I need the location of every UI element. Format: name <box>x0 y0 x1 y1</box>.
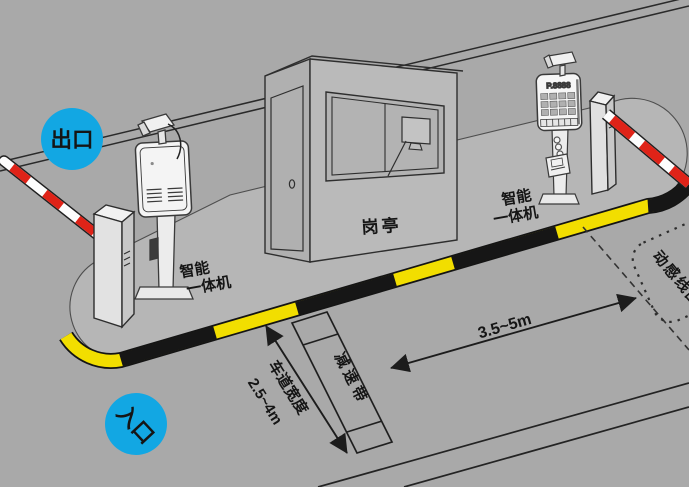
card-reader <box>546 154 570 177</box>
terminal-display-char <box>568 92 575 98</box>
terminal-display-char <box>568 100 575 106</box>
terminal-display-char <box>541 109 548 115</box>
terminal-display-char <box>559 109 566 115</box>
terminal-speaker-ring <box>556 144 562 150</box>
terminal-display-char <box>550 109 557 115</box>
exit-badge-label: 出口 <box>50 128 93 152</box>
booth-monitor-icon <box>402 117 430 144</box>
terminal-display-char <box>559 101 566 107</box>
booth-monitor-stand <box>409 143 422 150</box>
terminal-cabinet-shadow-edge <box>577 79 579 124</box>
terminal-display-char <box>568 108 575 114</box>
camera-mount <box>158 130 166 144</box>
terminal-base-plate <box>135 287 193 299</box>
barrier-post-front-face <box>94 214 122 327</box>
terminal-display-char <box>541 101 548 107</box>
terminal-display-char <box>559 93 566 99</box>
terminal-display-char <box>550 101 557 107</box>
exit-barrier-post <box>94 205 134 327</box>
entrance-barrier-post <box>590 92 616 194</box>
terminal-led-display: P.8888 <box>546 81 571 91</box>
terminal-junction-box <box>150 238 158 260</box>
parking-entrance-exit-diagram: 动感线圈 减速带 车道宽度 2.5~4m 3.5~5m 岗亭 <box>0 0 689 487</box>
terminal-cabinet <box>135 141 192 218</box>
terminal-base-plate <box>539 194 579 204</box>
terminal-display-char <box>550 93 557 99</box>
terminal-speaker-ring <box>554 137 560 143</box>
guard-booth-label: 岗亭 <box>361 215 402 238</box>
barrier-post-side-face <box>122 212 134 327</box>
exit-badge: 出口 <box>41 108 103 170</box>
entrance-badge: 入口 <box>105 393 167 455</box>
camera-mount <box>560 65 565 76</box>
terminal-pole <box>157 213 175 290</box>
terminal-display-char <box>541 93 548 99</box>
